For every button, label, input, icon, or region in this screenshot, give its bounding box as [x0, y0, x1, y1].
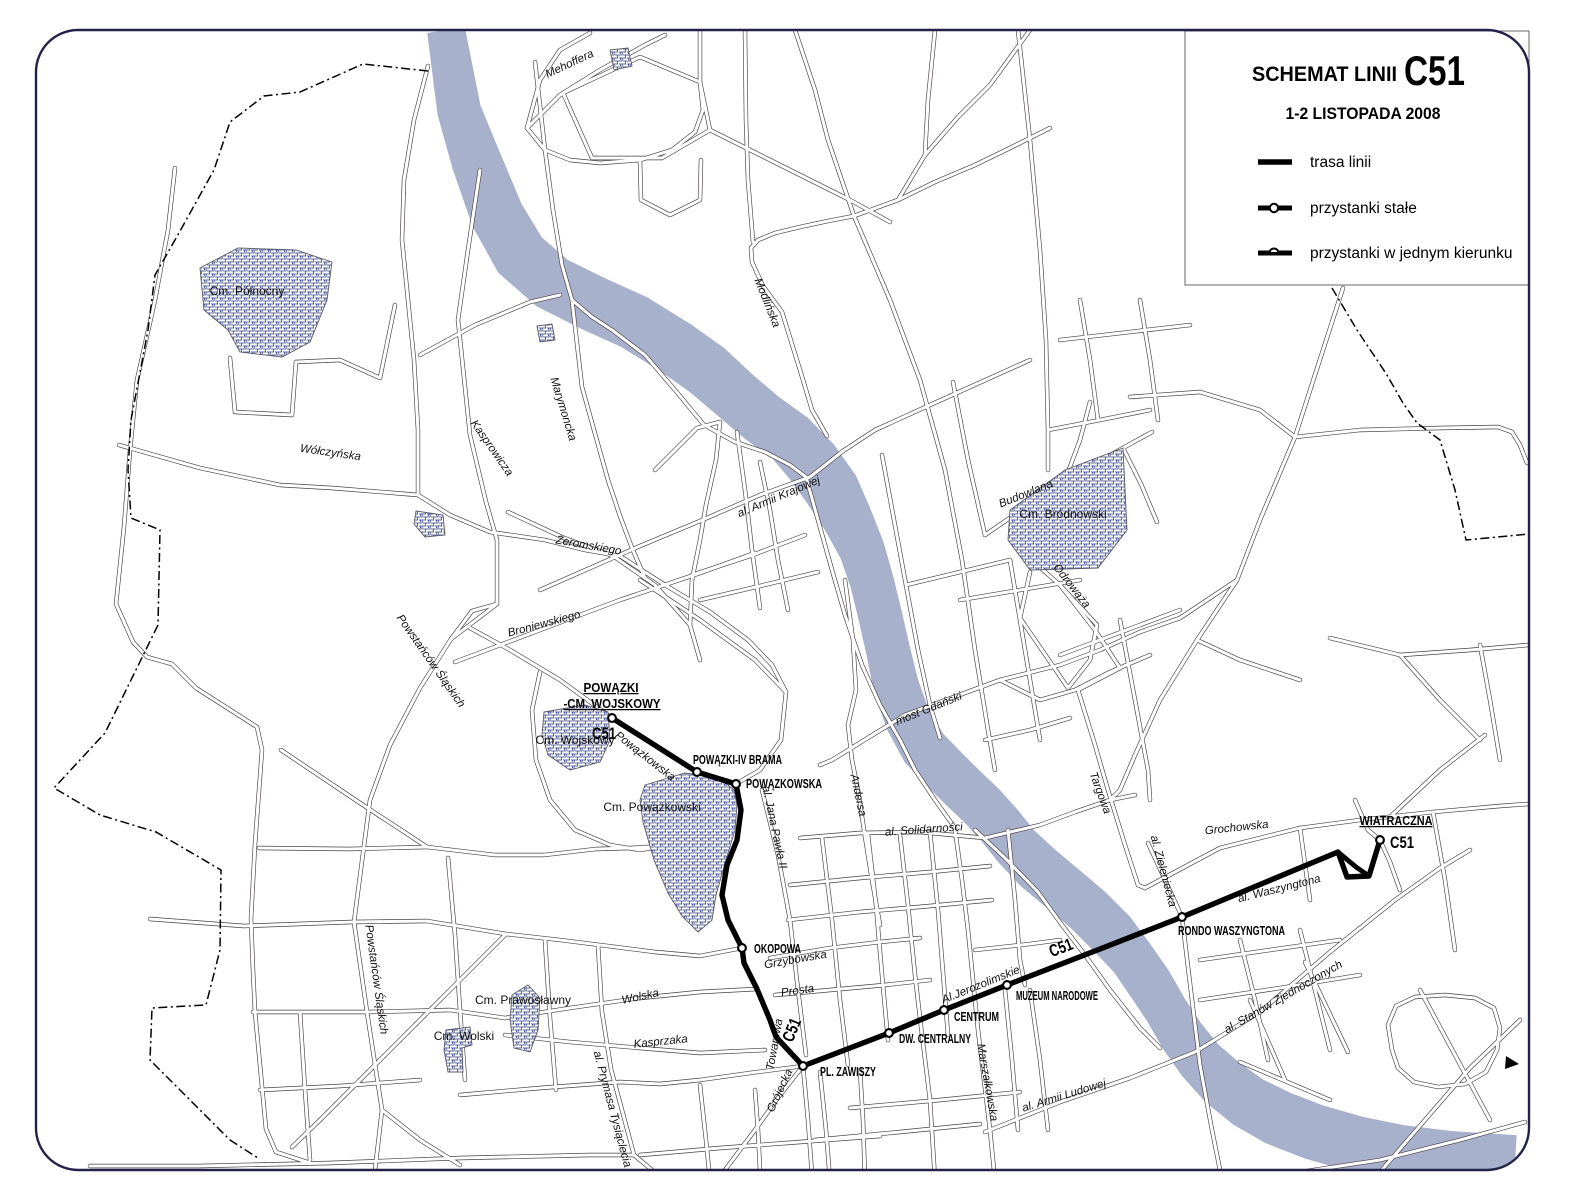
- svg-text:WIATRACZNA: WIATRACZNA: [1360, 814, 1433, 828]
- svg-text:trasa linii: trasa linii: [1310, 154, 1371, 171]
- svg-text:DW. CENTRALNY: DW. CENTRALNY: [899, 1032, 971, 1046]
- svg-text:POWĄZKOWSKA: POWĄZKOWSKA: [746, 777, 822, 791]
- svg-text:C51: C51: [1390, 833, 1414, 852]
- svg-text:Cm. Powązkowski: Cm. Powązkowski: [603, 800, 700, 814]
- svg-text:RONDO WASZYNGTONA: RONDO WASZYNGTONA: [1178, 924, 1285, 938]
- svg-text:POWĄZKI: POWĄZKI: [584, 681, 639, 695]
- svg-text:Cm. Wolski: Cm. Wolski: [434, 1029, 494, 1043]
- svg-text:przystanki stałe: przystanki stałe: [1310, 200, 1417, 217]
- svg-text:Cm. Prawosławny: Cm. Prawosławny: [475, 993, 571, 1007]
- svg-text:OKOPOWA: OKOPOWA: [754, 942, 801, 956]
- svg-text:przystanki w jednym kierunku: przystanki w jednym kierunku: [1310, 245, 1512, 262]
- svg-text:SCHEMAT LINII: SCHEMAT LINII: [1252, 63, 1397, 86]
- svg-text:POWĄZKI-IV BRAMA: POWĄZKI-IV BRAMA: [693, 753, 782, 767]
- svg-text:-CM. WOJSKOWY: -CM. WOJSKOWY: [564, 697, 662, 711]
- svg-text:1-2 LISTOPADA 2008: 1-2 LISTOPADA 2008: [1286, 104, 1441, 123]
- svg-text:MUZEUM NARODOWE: MUZEUM NARODOWE: [1016, 989, 1098, 1003]
- svg-text:C51: C51: [1404, 47, 1465, 94]
- svg-text:C51: C51: [592, 724, 616, 743]
- svg-text:CENTRUM: CENTRUM: [954, 1010, 999, 1024]
- svg-text:Cm. Bródnowski: Cm. Bródnowski: [1019, 507, 1106, 521]
- svg-text:Cm. Północny: Cm. Północny: [210, 284, 285, 298]
- svg-text:PL. ZAWISZY: PL. ZAWISZY: [820, 1065, 876, 1079]
